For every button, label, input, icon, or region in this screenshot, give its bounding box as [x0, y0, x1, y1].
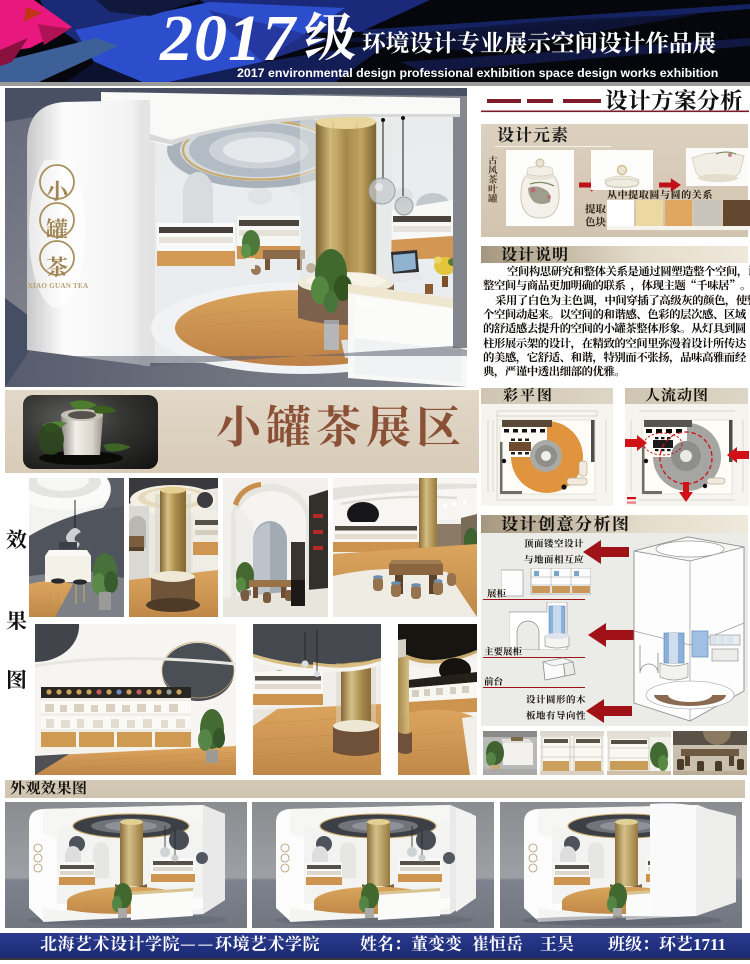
svg-text:XIAO GUAN TEA: XIAO GUAN TEA: [28, 282, 89, 290]
